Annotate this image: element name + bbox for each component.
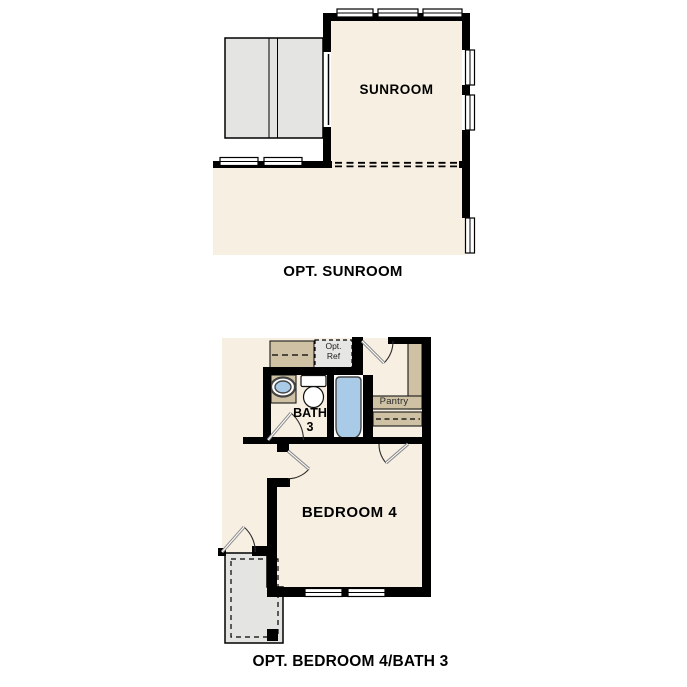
existing-structure — [225, 38, 323, 138]
bedroom-bath-caption: OPT. BEDROOM 4/BATH 3 — [208, 653, 493, 671]
opt-ref-line1: Opt. — [315, 341, 352, 351]
bath-label-line1: BATH — [283, 406, 337, 420]
bath-label-line2: 3 — [283, 420, 337, 434]
wall-segment — [363, 375, 373, 444]
wall-segment — [422, 337, 431, 597]
wall-segment — [263, 367, 271, 444]
wall-segment — [252, 546, 268, 556]
bath-label: BATH 3 — [283, 406, 337, 435]
sink-basin — [275, 381, 291, 393]
existing-room-floor — [213, 168, 465, 255]
wall-segment — [462, 21, 470, 50]
toilet-bowl — [304, 387, 324, 408]
bedroom-label: BEDROOM 4 — [277, 504, 422, 521]
wall-segment — [277, 444, 289, 452]
opt-ref-label: Opt. Ref — [315, 341, 352, 361]
wall-segment — [263, 367, 363, 375]
floor-plan-page: SUNROOM OPT. SUNROOM Opt. Ref Pantry BAT… — [0, 0, 687, 687]
wall-segment — [267, 478, 277, 597]
wall-segment — [323, 21, 331, 52]
bedroom-bath-plan — [218, 337, 431, 643]
opt-ref-line2: Ref — [315, 351, 352, 361]
patio-post — [267, 629, 278, 641]
bathtub — [336, 377, 361, 439]
hall-floor — [222, 338, 267, 554]
pantry-label: Pantry — [368, 396, 420, 407]
wall-segment — [462, 85, 470, 95]
sunroom-plan — [213, 9, 475, 255]
wall-segment — [459, 161, 465, 168]
toilet-tank — [301, 376, 326, 387]
sunroom-caption: OPT. SUNROOM — [233, 263, 453, 280]
wall-segment — [462, 130, 470, 218]
sunroom-room-label: SUNROOM — [331, 82, 462, 97]
